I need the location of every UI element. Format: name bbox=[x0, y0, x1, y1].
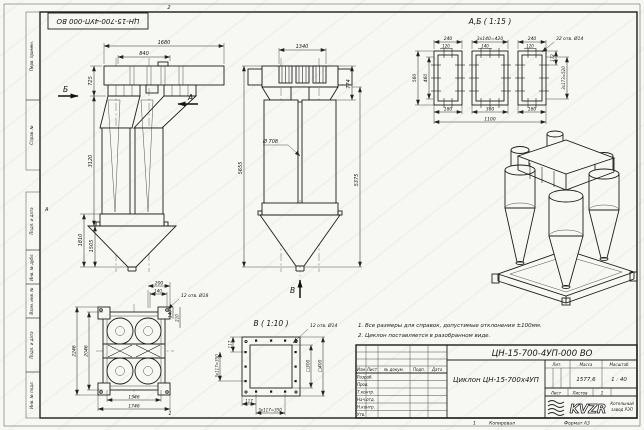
tb-sheets-value: 1 bbox=[601, 391, 604, 397]
section-arrow-b-label: Б bbox=[63, 85, 68, 94]
zone-letter-left: А bbox=[44, 207, 49, 213]
dim-front-1505: 1505 bbox=[89, 240, 95, 253]
tb-scale-label: Масштаб bbox=[609, 362, 629, 367]
dim-ab-560: 560 bbox=[412, 74, 418, 83]
section-arrow-v-label: В bbox=[290, 286, 295, 295]
detail-v-title: В ( 1:10 ) bbox=[254, 319, 289, 328]
dim-plan-1546: 1546 bbox=[128, 395, 140, 401]
top-stamp-number: ЦН-15-700-4УП-000 ВО bbox=[56, 17, 139, 25]
dim-ab-140: 140 bbox=[481, 44, 489, 49]
tb-row-utv: Утв. bbox=[357, 412, 365, 417]
tb-col-data: Дата bbox=[431, 367, 443, 372]
company-name-line1: Котельный bbox=[610, 401, 634, 406]
margin-label-vzam-inv: Взам. инв. № bbox=[29, 287, 34, 314]
label-plan-holes: 12 отв. Ø18 bbox=[181, 292, 208, 299]
note-2: 2. Циклон поставляется в разобранном вид… bbox=[358, 333, 491, 339]
dim-side-774: 774 bbox=[346, 79, 352, 89]
dim-v-3x117-bottom: 3x117=350 bbox=[258, 408, 282, 413]
dim-ab-180-left: 180 bbox=[444, 107, 453, 113]
tb-row-nkontr: Н.контр. bbox=[357, 405, 375, 410]
tb-col-list: Лист bbox=[366, 367, 378, 372]
margin-label-podp-data-2: Подп. и дата bbox=[29, 331, 34, 359]
tb-row-razrab: Разраб. bbox=[357, 375, 373, 380]
tb-drawing-name: Циклон ЦН-15-700x4УП bbox=[453, 376, 540, 384]
dim-ab-1100: 1100 bbox=[484, 117, 496, 123]
view-3d-isometric bbox=[492, 131, 637, 305]
margin-column: Перв. примен. Справ. № Подп. и дата Инв.… bbox=[26, 12, 40, 418]
margin-label-inv-dubl: Инв. № дубл. bbox=[29, 253, 34, 280]
dim-ab-172: 172 bbox=[550, 54, 555, 62]
dim-ab-120-left: 120 bbox=[442, 44, 450, 49]
margin-label-perv-primen: Перв. примен. bbox=[29, 41, 34, 71]
bottom-strip-number: 1 bbox=[473, 421, 476, 427]
company-logo-text: KVZR bbox=[570, 402, 607, 416]
tb-row-tkontr: Т.контр. bbox=[357, 390, 374, 395]
drawing-sheet: 2 А 1 Перв. примен. Справ. № Подп. и дат… bbox=[0, 0, 644, 430]
tb-col-dokum: № докум. bbox=[383, 367, 404, 372]
margin-label-inv-podl: Инв. № подл. bbox=[29, 381, 34, 409]
tb-row-prov: Пров. bbox=[357, 382, 369, 387]
dim-ab-240-right: 240 bbox=[528, 36, 537, 42]
zone-number-top: 2 bbox=[167, 5, 170, 11]
notes: 1. Все размеры для справок, допустимые о… bbox=[358, 323, 542, 339]
dim-v-300: □300 bbox=[306, 359, 312, 372]
tb-lit-label: Лит. bbox=[551, 362, 561, 367]
dim-ab-120-right: 120 bbox=[526, 44, 534, 49]
dim-front-3120: 3120 bbox=[88, 155, 94, 168]
tb-mass-value: 1577,6 bbox=[576, 377, 596, 383]
dim-plan-2246: 2246 bbox=[72, 345, 78, 357]
copied-label: Копировал bbox=[489, 421, 515, 427]
dim-ab-360: 360 bbox=[486, 107, 495, 113]
company-logo-icon bbox=[548, 401, 564, 416]
top-stamp: ЦН-15-700-4УП-000 ВО bbox=[48, 13, 148, 29]
detail-ab: А,Б ( 1:15 ) 240 3x140=420 240 120 140 1… bbox=[412, 17, 583, 124]
dim-plan-1746: 1746 bbox=[128, 404, 140, 410]
dim-ab-3x140: 3x140=420 bbox=[477, 36, 504, 42]
title-block: Изм Лист № докум. Подп. Дата Разраб. Про… bbox=[356, 345, 637, 418]
format-label: Формат А3 bbox=[564, 421, 590, 427]
dim-ab-180-right: 180 bbox=[528, 107, 537, 113]
dim-ab-240-left: 240 bbox=[444, 36, 453, 42]
dim-v-400: □400 bbox=[318, 359, 324, 372]
label-ab-holes: 32 отв. Ø14 bbox=[556, 35, 583, 42]
tb-col-izm: Изм bbox=[357, 367, 365, 372]
dim-ab-460: 460 bbox=[423, 74, 429, 83]
label-v-holes: 12 отв. Ø14 bbox=[310, 322, 337, 329]
dim-side-dia708: Ø 708 bbox=[262, 138, 278, 145]
tb-doc-number: ЦН-15-700-4УП-000 ВО bbox=[492, 349, 593, 359]
dim-ab-3x173: 3x173=520 bbox=[561, 66, 566, 90]
view-plan: 200 140 12 отв. Ø18 140 210 2246 2046 15… bbox=[72, 281, 209, 412]
detail-v: В ( 1:10 ) 12 отв. Ø14 117 3x117=350 □30… bbox=[215, 319, 338, 415]
tb-row-nachotd: Нач.отд. bbox=[357, 397, 375, 402]
dim-plan-210-corner: 210 bbox=[175, 314, 180, 322]
drawing-canvas: 2 А 1 Перв. примен. Справ. № Подп. и дат… bbox=[0, 0, 644, 430]
tb-sheets-label: Листов bbox=[572, 391, 589, 396]
tb-mass-label: Масса bbox=[580, 362, 593, 367]
dim-plan-140-corner: 140 bbox=[168, 310, 173, 318]
view-side: 1340 774 Ø 708 5655 5375 В bbox=[238, 44, 362, 298]
dim-v-3x117-left: 3x117=350 bbox=[215, 354, 220, 378]
company-name-line2: завод РЭП bbox=[611, 407, 633, 412]
zone-number-bottom: 1 bbox=[168, 411, 171, 417]
tb-sheet-label: Лист bbox=[550, 391, 562, 396]
dim-front-725: 725 bbox=[88, 76, 94, 86]
dim-front-840: 840 bbox=[139, 51, 149, 57]
dim-v-117-bottom: 117 bbox=[245, 399, 253, 404]
dim-side-5655: 5655 bbox=[238, 162, 244, 175]
tb-scale-value: 1 : 40 bbox=[611, 377, 627, 383]
dim-plan-140-top: 140 bbox=[154, 289, 162, 294]
dim-front-1680: 1680 bbox=[158, 40, 171, 46]
note-1: 1. Все размеры для справок, допустимые о… bbox=[358, 323, 542, 329]
detail-ab-title: А,Б ( 1:15 ) bbox=[468, 17, 512, 26]
margin-label-sprav-no: Справ. № bbox=[29, 125, 34, 144]
view-front: 1680 840 725 3120 1810 1505 Б А bbox=[58, 40, 224, 272]
tb-col-podp: Подп. bbox=[413, 367, 425, 372]
margin-label-podp-data-1: Подп. и дата bbox=[29, 207, 34, 235]
dim-side-5375: 5375 bbox=[354, 174, 360, 187]
dim-plan-200: 200 bbox=[155, 281, 164, 287]
dim-v-117-left: 117 bbox=[228, 340, 233, 348]
dim-front-1810: 1810 bbox=[78, 234, 84, 247]
bottom-strip: 1 Копировал Формат А3 bbox=[473, 421, 590, 427]
dim-plan-2046: 2046 bbox=[84, 345, 90, 357]
section-arrow-a-label: А bbox=[187, 93, 193, 102]
dim-side-1340: 1340 bbox=[296, 44, 309, 50]
